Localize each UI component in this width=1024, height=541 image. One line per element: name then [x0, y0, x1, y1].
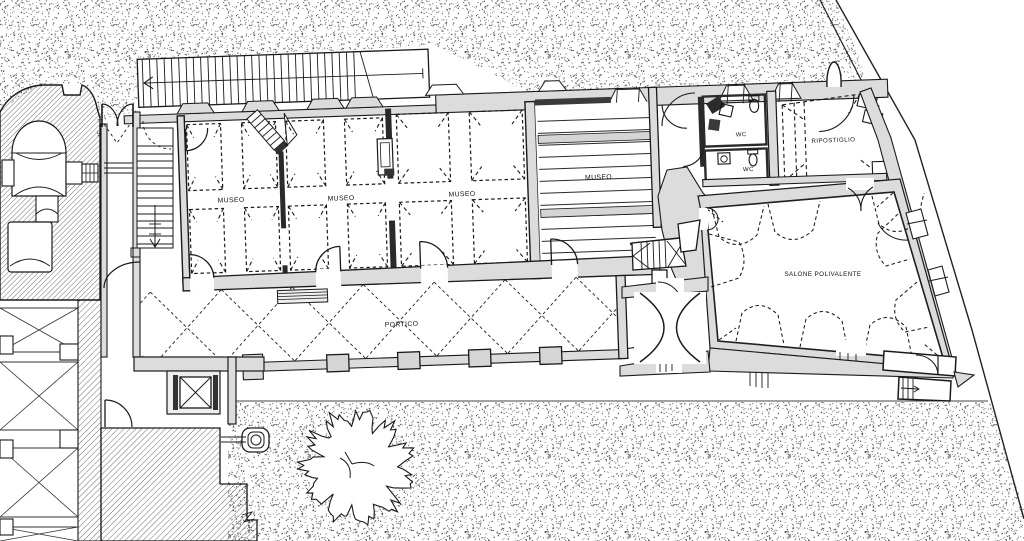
svg-text:SALONE POLIVALENTE: SALONE POLIVALENTE: [784, 271, 861, 278]
svg-text:WC: WC: [736, 132, 747, 138]
svg-text:WC: WC: [743, 167, 754, 173]
svg-text:MUSEO: MUSEO: [449, 191, 476, 199]
svg-text:MUSEO: MUSEO: [218, 197, 245, 205]
svg-text:MUSEO: MUSEO: [328, 195, 355, 203]
svg-text:MUSEO: MUSEO: [585, 174, 612, 182]
svg-text:PORTICO: PORTICO: [385, 321, 419, 329]
